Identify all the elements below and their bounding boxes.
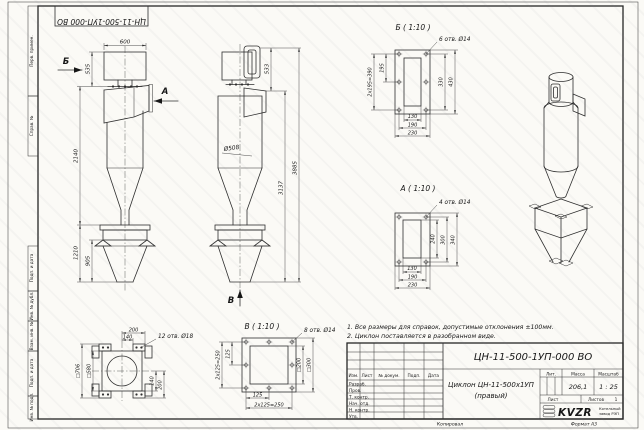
hopper-holes-note: 12 отв. Ø18 (158, 333, 193, 340)
view-arrow-b-label: Б (63, 57, 70, 67)
stamp-podp-data-1: Подп. и дата (29, 253, 34, 282)
sheet-frame: Перв. примен. Справ. № Подп. и дата Инв.… (8, 2, 638, 428)
stamp-sprav-no: Справ. № (29, 115, 34, 136)
detail-v-dim-125l: 125 (226, 349, 232, 359)
dim-600: 600 (120, 40, 131, 46)
isometric-view (529, 73, 593, 267)
detail-a-dim-300: 300 (441, 235, 447, 245)
detail-v-title: В ( 1:10 ) (245, 322, 280, 331)
detail-b-dim-390: 2х195=390 (368, 67, 374, 96)
tb-row-utv: Утв. (349, 414, 358, 420)
dim-3137: 3137 (279, 181, 285, 195)
tb-col-izm: Изм. (348, 373, 358, 379)
tb-doc-number: ЦН-11-500-1УП-000 ВО (474, 352, 593, 363)
detail-b-dim-330: 330 (439, 77, 445, 87)
tb-col-data: Дата (428, 373, 439, 379)
side-view: Ø508 533 3137 3885 В (210, 44, 301, 306)
detail-a-dim-230: 230 (408, 283, 418, 289)
tb-sheets-label: Листов (588, 397, 605, 403)
tb-row-nkontr: Н. контр. (349, 408, 370, 414)
hopper-dim-580: □580 (87, 364, 93, 378)
detail-v-dim-300: □300 (307, 358, 313, 372)
front-view: 600 535 2140 1210 905 Б А (58, 40, 178, 293)
stamp-podp-data-2: Подп. и дата (29, 358, 34, 387)
detail-v-dim-250b: 2х125=250 (254, 403, 283, 409)
stamp-vzam-inv: Взам. инв. № (29, 321, 34, 350)
tb-row-prov: Пров. (349, 388, 362, 394)
hopper-dim-140t: 140 (123, 335, 133, 341)
cyclone-drawing: Перв. примен. Справ. № Подп. и дата Инв.… (0, 0, 644, 430)
view-arrow-v-label: В (228, 296, 234, 306)
title-block: Изм. Лист № докум. Подп. Дата Разраб. Пр… (347, 343, 623, 420)
hopper-dim-200t: 200 (129, 328, 139, 334)
dim-535: 535 (86, 63, 92, 74)
detail-v-dim-250l: 2х125=250 (216, 350, 222, 379)
stamp-perv-primen: Перв. примен. (29, 35, 34, 66)
tb-name-line2: (правый) (475, 392, 508, 400)
tb-row-razrab: Разраб. (349, 382, 366, 388)
note-2: 2. Циклон поставляется в разобранном вид… (347, 332, 496, 340)
detail-a-title: А ( 1:10 ) (400, 184, 436, 193)
tb-logo-sub2: завод РЭП (599, 412, 619, 416)
detail-a-dim-130: 130 (407, 266, 417, 272)
detail-v-dim-200: □200 (297, 358, 303, 372)
dim-dia-508: Ø508 (222, 144, 240, 153)
tb-name-line1: Циклон ЦН-11-500х1УП (448, 381, 535, 389)
hopper-dim-706: □706 (76, 364, 82, 378)
detail-b-dim-190: 190 (408, 123, 418, 129)
detail-b-dim-195: 195 (380, 63, 386, 73)
kopiroval-label: Копировал (437, 422, 463, 428)
tb-massa-value: 206,1 (569, 383, 588, 391)
detail-b-title: Б ( 1:10 ) (396, 23, 431, 32)
detail-v-dim-125b: 125 (253, 393, 263, 399)
dim-3885: 3885 (293, 161, 299, 175)
note-1: 1. Все размеры для справок, допустимые о… (347, 324, 554, 331)
detail-a-holes-note: 4 отв. Ø14 (439, 199, 471, 206)
detail-view-b: Б ( 1:10 ) 6 отв. Ø14 195 2х195=390 330 … (368, 23, 471, 138)
tb-sheets-value: 1 (615, 397, 618, 403)
format-label: Формат А3 (571, 422, 597, 428)
manufacturer-logo-icon (543, 406, 555, 417)
stamp-inv-dubl: Инв. № дубл. (29, 292, 34, 321)
detail-b-dim-230: 230 (408, 131, 418, 137)
detail-view-a: А ( 1:10 ) 4 отв. Ø14 240 300 340 130 19… (395, 184, 471, 290)
tb-logo-text: KVZR (558, 407, 592, 419)
dim-905: 905 (86, 255, 92, 266)
hopper-top-view: 200 140 12 отв. Ø18 □706 □580 140 200 (76, 328, 194, 402)
tb-massa-label: Масса (571, 372, 585, 378)
tb-scale-label: Масштаб (598, 372, 619, 378)
dim-533: 533 (265, 63, 271, 74)
stamp-inv-podl: Инв. № подл. (29, 393, 34, 422)
hopper-dim-140r: 140 (150, 376, 156, 386)
detail-v-holes-note: 8 отв. Ø14 (304, 327, 336, 334)
detail-a-dim-190: 190 (408, 275, 418, 281)
tb-col-dokum: № докум. (378, 373, 399, 379)
tb-row-nachotd: Нач. отд. (349, 401, 370, 407)
tb-scale-value: 1 : 25 (599, 383, 618, 391)
drawing-sheet: Перв. примен. Справ. № Подп. и дата Инв.… (0, 0, 644, 430)
hopper-dim-200r: 200 (158, 380, 164, 390)
detail-a-dim-340: 340 (451, 235, 457, 245)
tb-row-tkontr: Т. контр. (348, 395, 369, 401)
tb-sheet-label: Лист (548, 397, 559, 403)
detail-b-dim-430: 430 (449, 77, 455, 87)
tb-col-list: Лист (362, 373, 373, 379)
tb-col-podp: Подп. (407, 373, 420, 379)
detail-b-holes-note: 6 отв. Ø14 (439, 36, 471, 43)
view-arrow-a-label: А (161, 87, 169, 97)
notes: 1. Все размеры для справок, допустимые о… (347, 324, 554, 340)
dim-2140: 2140 (74, 149, 80, 163)
doc-number-rotated: ЦН-11-500-1УП-000 ВО (57, 17, 146, 26)
detail-view-v: В ( 1:10 ) 8 отв. Ø14 125 2х125=250 □200… (216, 322, 336, 410)
tb-logo-sub1: Котельный (599, 407, 621, 411)
detail-a-dim-240: 240 (431, 234, 437, 244)
detail-b-dim-130: 130 (408, 114, 418, 120)
dim-1210: 1210 (74, 246, 80, 260)
tb-lit-label: Лит. (546, 372, 556, 378)
